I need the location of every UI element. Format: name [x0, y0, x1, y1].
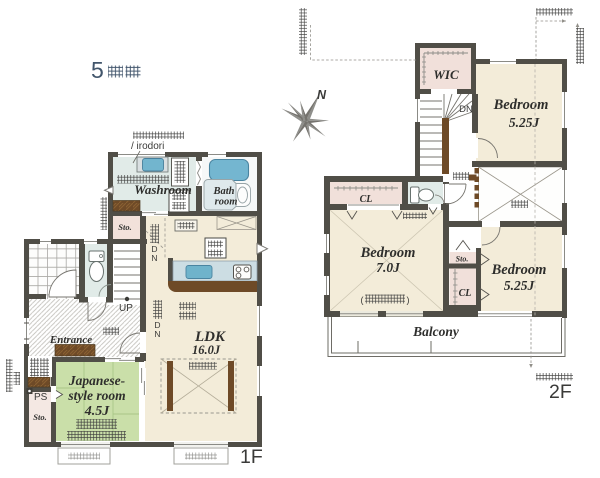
- svg-text:Japanese-: Japanese-: [68, 373, 126, 388]
- svg-text:Bedroom: Bedroom: [493, 97, 549, 113]
- svg-text:Washroom: Washroom: [134, 182, 192, 197]
- svg-text:Bedroom: Bedroom: [360, 245, 416, 261]
- svg-text:style room: style room: [67, 388, 125, 403]
- svg-text:7.0J: 7.0J: [376, 260, 401, 275]
- svg-text:WIC: WIC: [433, 67, 459, 82]
- svg-text:2F: 2F: [549, 381, 572, 403]
- svg-text:5: 5: [91, 57, 104, 83]
- svg-text:DN: DN: [459, 104, 473, 115]
- svg-text:/ irodori: / irodori: [131, 141, 164, 152]
- svg-text:N: N: [317, 88, 327, 102]
- svg-text:room: room: [215, 197, 238, 208]
- svg-text:UP: UP: [119, 303, 133, 314]
- svg-text:Sto.: Sto.: [456, 255, 469, 264]
- svg-text:CL: CL: [360, 194, 373, 205]
- svg-text:Bath: Bath: [212, 186, 234, 197]
- svg-text:1F: 1F: [240, 446, 263, 468]
- svg-text:Bedroom: Bedroom: [491, 262, 547, 278]
- svg-text:5.25J: 5.25J: [509, 115, 541, 130]
- svg-text:Sto.: Sto.: [33, 412, 46, 422]
- svg-text:16.0J: 16.0J: [192, 343, 221, 357]
- svg-text:CL: CL: [459, 288, 472, 299]
- svg-text:PS: PS: [34, 392, 48, 403]
- svg-text:5.25J: 5.25J: [504, 278, 536, 293]
- svg-text:4.5J: 4.5J: [84, 404, 111, 419]
- svg-text:N: N: [154, 329, 160, 339]
- svg-text:): ): [407, 295, 410, 305]
- svg-text:Sto.: Sto.: [118, 222, 131, 232]
- svg-text:Entrance: Entrance: [49, 334, 92, 346]
- svg-text:Balcony: Balcony: [412, 324, 460, 339]
- svg-text:N: N: [151, 253, 157, 263]
- svg-text:(: (: [361, 295, 364, 305]
